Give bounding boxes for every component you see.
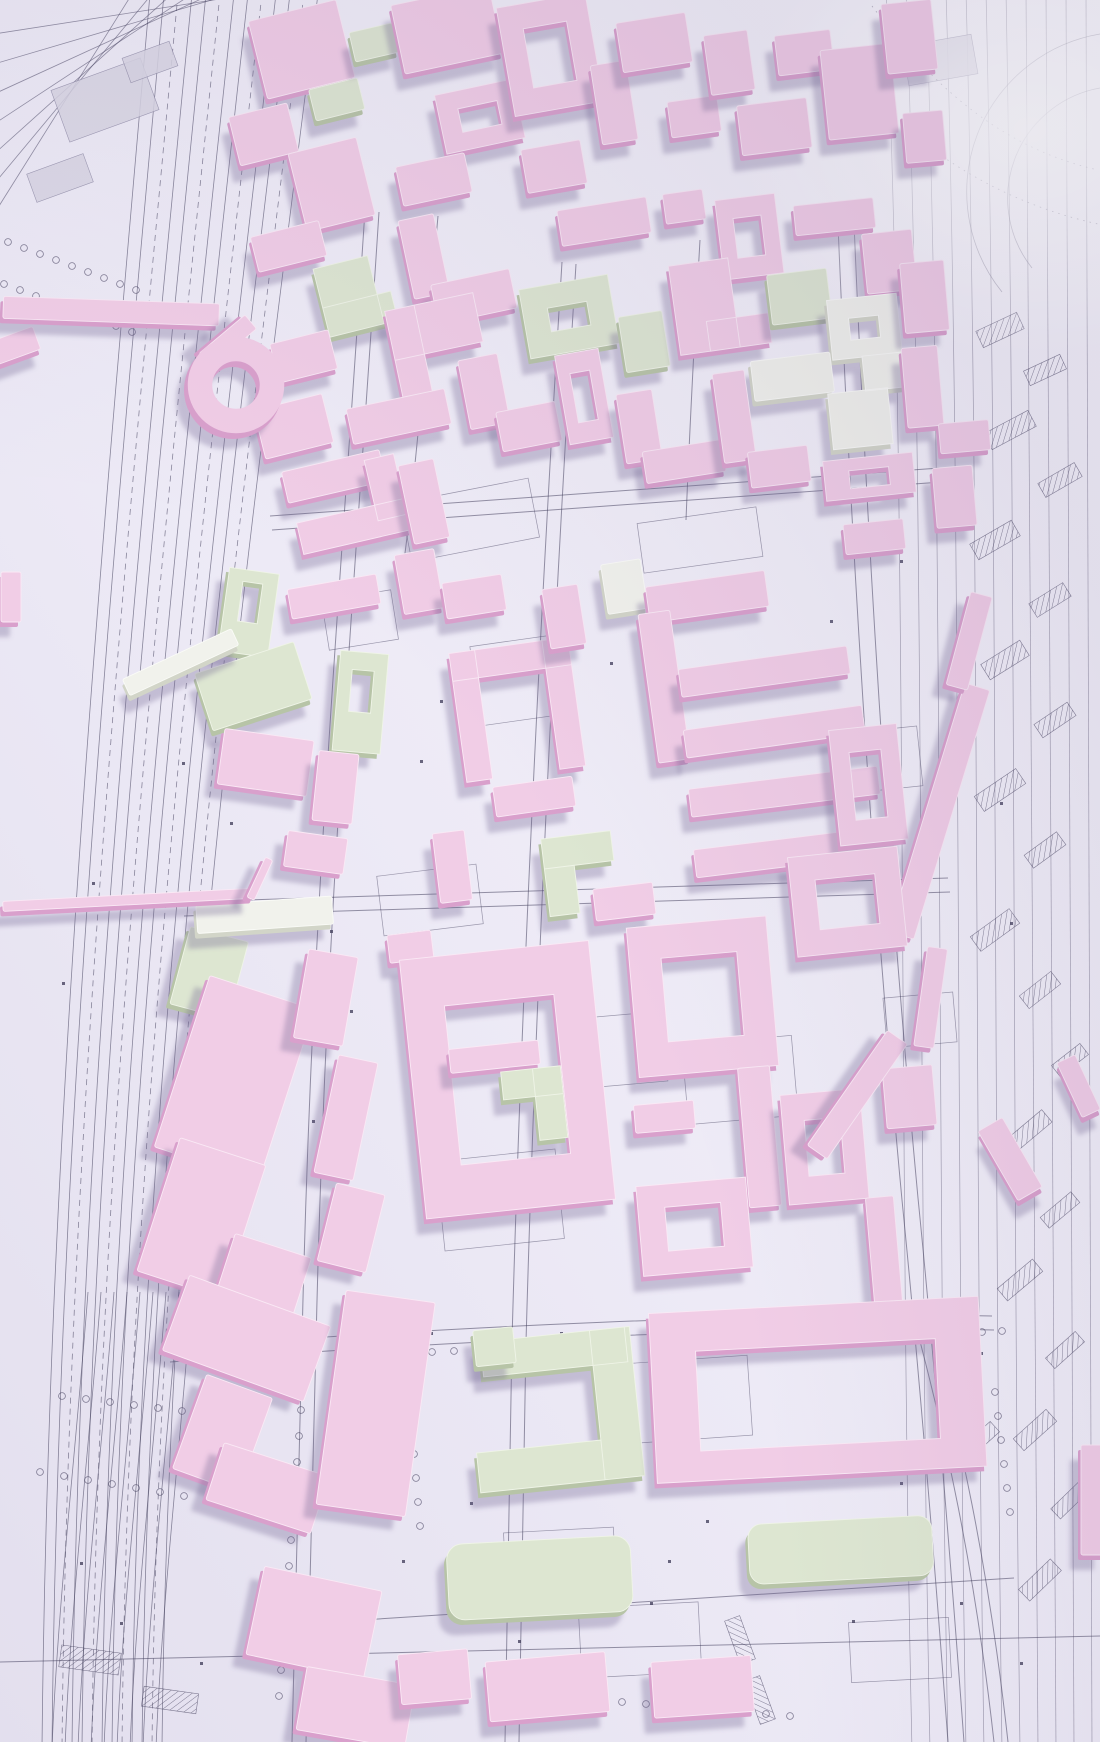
photo-vignette — [0, 0, 1100, 1742]
model-canvas — [0, 0, 1100, 1742]
architectural-model-photo — [0, 0, 1100, 1742]
foam-model-photo — [0, 0, 1100, 1742]
